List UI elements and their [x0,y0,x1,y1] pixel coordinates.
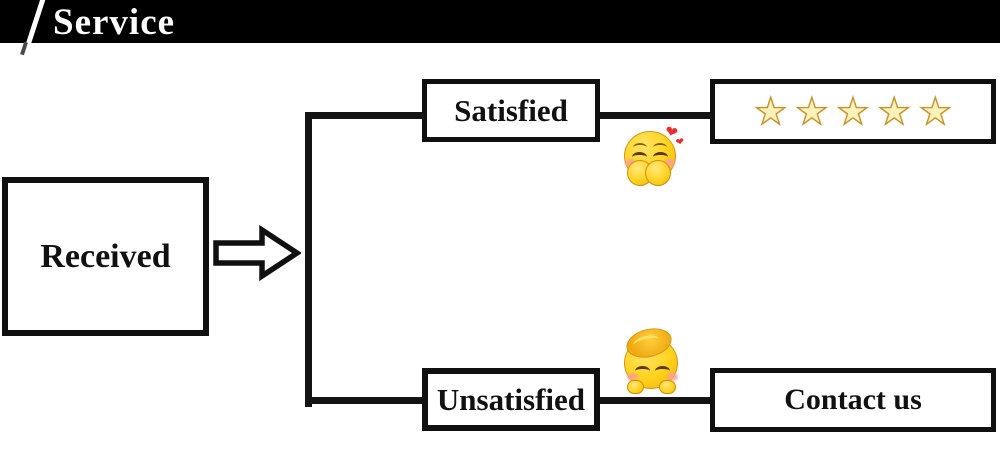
emoji-hand [645,160,671,186]
node-unsatisfied-label: Unsatisfied [437,382,585,418]
branch-vertical-line [305,112,312,407]
node-unsatisfied: Unsatisfied [422,368,600,431]
star-rating: ★★★★★ [710,79,996,144]
service-flow-diagram: Service Received Satisfied ★★★★★ Unsatis… [0,0,1000,464]
connector-to-satisfied [309,112,425,119]
star-icon: ★ [795,93,828,130]
node-received: Received [2,177,209,336]
page-title: Service [53,0,175,43]
node-contact-us: Contact us [710,368,996,432]
right-block-arrow-icon [213,224,301,282]
connector-unsatisfied-to-contact [598,397,713,404]
node-satisfied: Satisfied [422,79,600,142]
emoji-brow [653,143,667,152]
slash-decoration [25,0,46,48]
node-contact-us-label: Contact us [784,383,922,417]
emoji-brow [633,143,647,152]
slash-tail-decoration [20,42,28,56]
star-icon: ★ [836,93,869,130]
star-icon: ★ [919,93,952,130]
node-satisfied-label: Satisfied [454,93,568,129]
star-icon: ★ [878,93,911,130]
shy-peeking-emoji-icon [621,328,685,398]
heart-icon: ❤ [675,137,685,148]
connector-satisfied-to-stars [598,112,713,119]
star-icon: ★ [754,93,787,130]
emoji-hand [627,380,644,394]
emoji-hand [659,380,676,394]
header-banner: Service [0,0,1000,43]
giggling-covering-mouth-emoji-icon: ❤ ❤ [621,127,685,199]
connector-to-unsatisfied [309,397,425,404]
node-received-label: Received [40,238,170,276]
